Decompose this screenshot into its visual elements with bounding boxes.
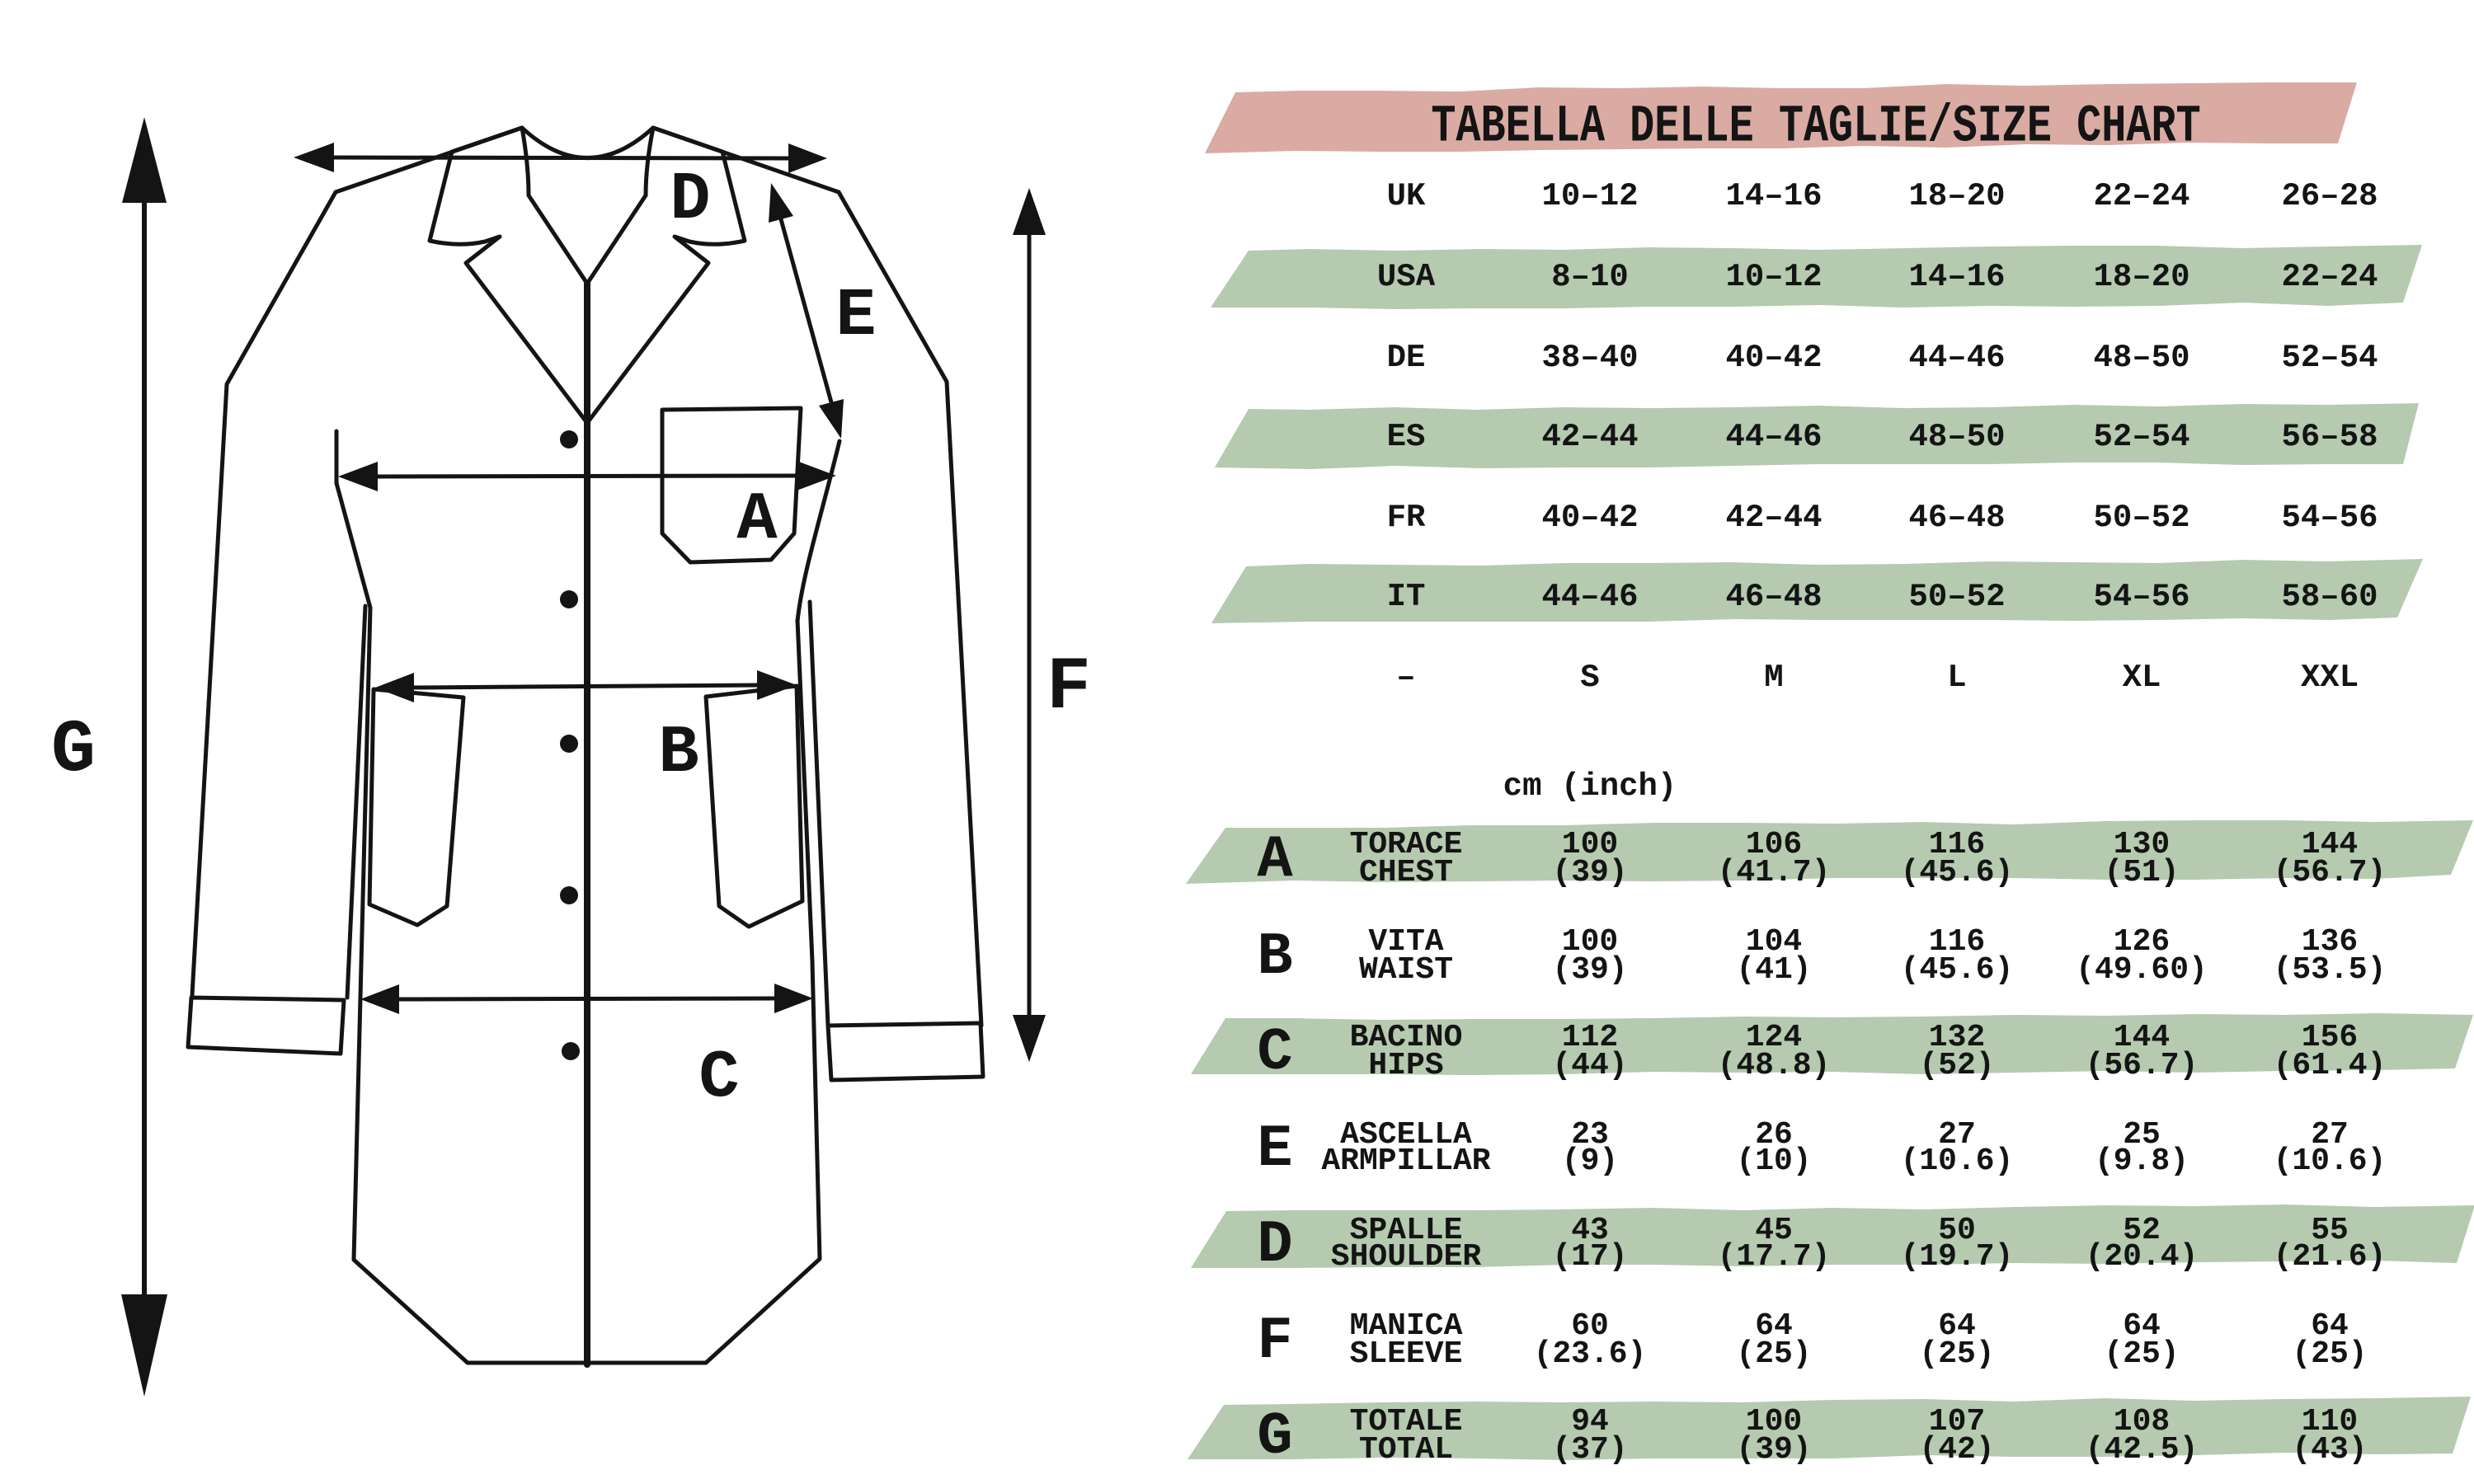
svg-text:8–10: 8–10 [1551, 259, 1629, 295]
svg-text:ARMPILLAR: ARMPILLAR [1321, 1144, 1490, 1179]
svg-text:TABELLA DELLE TAGLIE/SIZE CHAR: TABELLA DELLE TAGLIE/SIZE CHART [1431, 97, 2200, 157]
svg-text:40–42: 40–42 [1541, 500, 1638, 536]
svg-text:46–48: 46–48 [1725, 579, 1822, 615]
svg-text:(20.4): (20.4) [2086, 1239, 2199, 1275]
svg-text:14–16: 14–16 [1725, 178, 1822, 214]
svg-text:FR: FR [1387, 500, 1426, 536]
svg-text:(39): (39) [1552, 855, 1627, 890]
svg-text:(37): (37) [1552, 1432, 1627, 1468]
svg-text:(10.6): (10.6) [2274, 1144, 2387, 1179]
svg-text:(42.5): (42.5) [2086, 1432, 2199, 1468]
svg-text:(9.8): (9.8) [2095, 1144, 2189, 1179]
svg-text:G: G [51, 709, 96, 793]
svg-text:48–50: 48–50 [1908, 419, 2005, 455]
svg-text:(45.6): (45.6) [1901, 855, 2014, 890]
svg-text:USA: USA [1377, 259, 1436, 295]
svg-text:(48.8): (48.8) [1718, 1048, 1831, 1083]
svg-text:52–54: 52–54 [2093, 419, 2189, 455]
svg-text:56–58: 56–58 [2281, 419, 2378, 455]
svg-text:TOTAL: TOTAL [1359, 1432, 1453, 1468]
svg-text:(39): (39) [1736, 1432, 1811, 1468]
svg-text:A: A [1257, 826, 1293, 894]
svg-text:(19.7): (19.7) [1901, 1239, 2014, 1275]
svg-text:D: D [670, 162, 710, 238]
svg-text:A: A [736, 481, 778, 558]
svg-text:XXL: XXL [2301, 660, 2359, 696]
svg-text:14–16: 14–16 [1908, 259, 2005, 295]
svg-text:46–48: 46–48 [1908, 500, 2005, 536]
svg-text:B: B [658, 715, 698, 791]
svg-text:(25): (25) [2292, 1336, 2367, 1372]
svg-text:(23.6): (23.6) [1534, 1336, 1647, 1372]
svg-text:(61.4): (61.4) [2274, 1048, 2387, 1083]
svg-text:(52): (52) [1919, 1048, 1994, 1083]
svg-text:UK: UK [1387, 178, 1426, 214]
svg-text:50–52: 50–52 [2093, 500, 2189, 536]
svg-text:42–44: 42–44 [1541, 419, 1638, 455]
svg-text:22–24: 22–24 [2281, 259, 2378, 295]
svg-text:22–24: 22–24 [2093, 178, 2189, 214]
svg-text:(42): (42) [1919, 1432, 1994, 1468]
svg-text:B: B [1257, 923, 1292, 991]
svg-text:IT: IT [1387, 579, 1426, 615]
svg-text:C: C [1257, 1019, 1292, 1087]
svg-text:ES: ES [1387, 419, 1426, 455]
svg-text:(56.7): (56.7) [2086, 1048, 2199, 1083]
svg-text:XL: XL [2123, 660, 2161, 696]
svg-text:WAIST: WAIST [1359, 952, 1453, 988]
svg-text:CHEST: CHEST [1359, 855, 1453, 890]
svg-text:F: F [1257, 1308, 1292, 1375]
svg-text:58–60: 58–60 [2281, 579, 2378, 615]
svg-text:(39): (39) [1552, 952, 1627, 988]
svg-text:(17.7): (17.7) [1718, 1239, 1831, 1275]
svg-text:(44): (44) [1552, 1048, 1627, 1083]
svg-text:–: – [1396, 660, 1415, 696]
svg-text:10–12: 10–12 [1541, 178, 1638, 214]
svg-text:(9): (9) [1562, 1144, 1618, 1179]
svg-text:44–46: 44–46 [1725, 419, 1822, 455]
svg-text:44–46: 44–46 [1908, 340, 2005, 376]
svg-text:44–46: 44–46 [1541, 579, 1638, 615]
svg-text:SLEEVE: SLEEVE [1350, 1336, 1463, 1372]
svg-text:(51): (51) [2104, 855, 2179, 890]
svg-text:DE: DE [1387, 340, 1426, 376]
svg-text:C: C [698, 1040, 739, 1116]
svg-text:(49.60): (49.60) [2076, 952, 2208, 988]
svg-text:18–20: 18–20 [1908, 178, 2005, 214]
svg-text:(25): (25) [2104, 1336, 2179, 1372]
svg-text:(21.6): (21.6) [2274, 1239, 2387, 1275]
svg-text:L: L [1947, 660, 1966, 696]
svg-text:42–44: 42–44 [1725, 500, 1822, 536]
svg-text:48–50: 48–50 [2093, 340, 2189, 376]
svg-text:F: F [1047, 646, 1091, 730]
svg-text:G: G [1257, 1403, 1292, 1471]
svg-text:cm (inch): cm (inch) [1503, 768, 1677, 805]
svg-text:(43): (43) [2292, 1432, 2367, 1468]
svg-text:50–52: 50–52 [1908, 579, 2005, 615]
svg-text:E: E [1257, 1115, 1292, 1183]
svg-text:52–54: 52–54 [2281, 340, 2378, 376]
svg-text:10–12: 10–12 [1725, 259, 1822, 295]
svg-text:(56.7): (56.7) [2274, 855, 2387, 890]
svg-text:(41.7): (41.7) [1718, 855, 1831, 890]
svg-text:54–56: 54–56 [2093, 579, 2189, 615]
svg-text:(17): (17) [1552, 1239, 1627, 1275]
svg-text:D: D [1257, 1211, 1292, 1279]
svg-text:38–40: 38–40 [1541, 340, 1638, 376]
svg-text:(10.6): (10.6) [1901, 1144, 2014, 1179]
svg-text:26–28: 26–28 [2281, 178, 2378, 214]
svg-text:(25): (25) [1919, 1336, 1994, 1372]
svg-text:HIPS: HIPS [1368, 1048, 1443, 1083]
svg-text:(10): (10) [1736, 1144, 1811, 1179]
svg-text:54–56: 54–56 [2281, 500, 2378, 536]
svg-text:(25): (25) [1736, 1336, 1811, 1372]
svg-text:18–20: 18–20 [2093, 259, 2189, 295]
svg-text:M: M [1764, 660, 1783, 696]
svg-text:SHOULDER: SHOULDER [1331, 1239, 1482, 1275]
svg-text:E: E [835, 278, 876, 355]
svg-text:(45.6): (45.6) [1901, 952, 2014, 988]
svg-text:40–42: 40–42 [1725, 340, 1822, 376]
svg-text:(41): (41) [1736, 952, 1811, 988]
svg-text:S: S [1580, 660, 1599, 696]
svg-text:(53.5): (53.5) [2274, 952, 2387, 988]
